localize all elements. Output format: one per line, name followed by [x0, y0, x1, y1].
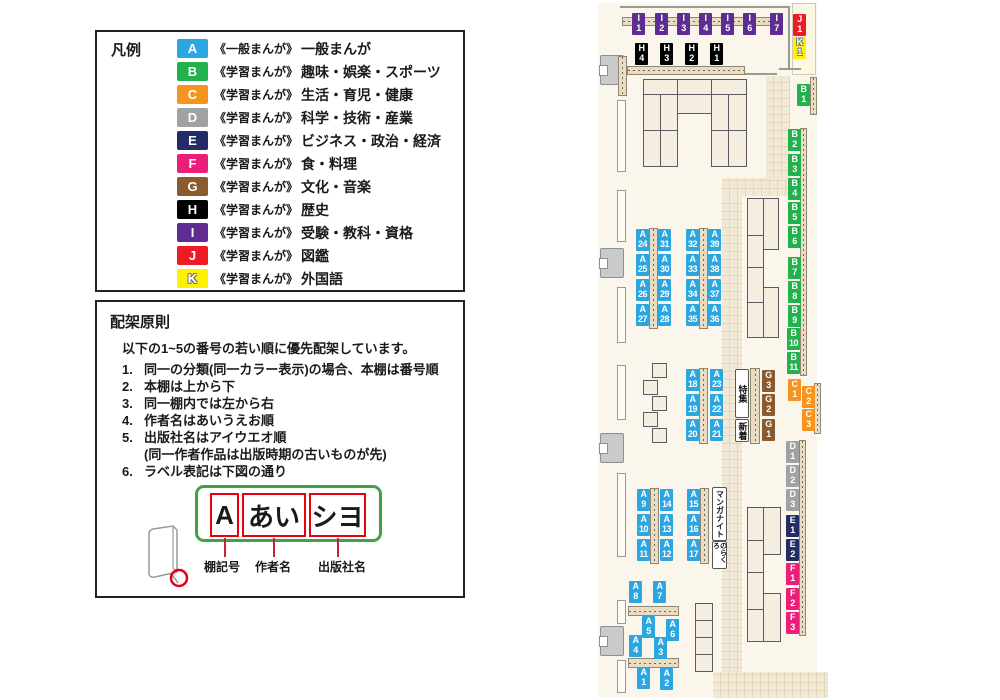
shelf-label-A22: A22 [710, 394, 723, 416]
shelf-block [747, 609, 764, 642]
shelf-label-A37: A37 [708, 279, 721, 301]
shelf-label-B6: B6 [788, 226, 801, 248]
shelf-label-B9: B9 [788, 305, 801, 327]
table-square [652, 428, 667, 443]
shelf-label-A15: A15 [687, 489, 700, 511]
shelf-label-A25: A25 [636, 254, 649, 276]
shelf-label-G1: G1 [762, 419, 775, 441]
shelf-label-I7: I7 [770, 13, 783, 35]
wall-shelf [617, 100, 626, 172]
shelf-block [660, 130, 678, 167]
shelf-label-E2: E2 [786, 539, 799, 561]
shelf-label-A1: A1 [637, 667, 650, 689]
shelf-label-A35: A35 [686, 304, 699, 326]
table-square [652, 396, 667, 411]
sign-tokushu: 特集 [735, 369, 749, 418]
shelf-label-B1: B1 [797, 84, 810, 106]
shelf-label-E1: E1 [786, 515, 799, 537]
wall [620, 6, 790, 8]
shelf-strip [618, 56, 627, 96]
shelf-label-H3: H3 [660, 43, 673, 65]
shelf-label-H1: H1 [710, 43, 723, 65]
shelf-block [747, 572, 764, 610]
shelf-block [763, 593, 781, 642]
shelf-block [677, 94, 712, 114]
shelf-label-A13: A13 [660, 514, 673, 536]
door [600, 626, 624, 656]
shelf-block [643, 130, 661, 167]
shelf-label-G2: G2 [762, 394, 775, 416]
shelf-strip [800, 128, 807, 376]
shelf-label-A24: A24 [636, 229, 649, 251]
shelf-block [643, 79, 678, 95]
shelf-label-H4: H4 [635, 43, 648, 65]
shelf-label-A9: A9 [637, 489, 650, 511]
shelf-label-C1: C1 [788, 379, 801, 401]
shelf-strip [627, 66, 745, 75]
shelf-block [747, 507, 764, 541]
door [600, 433, 624, 463]
walkway [766, 76, 790, 178]
shelf-label-B5: B5 [788, 202, 801, 224]
shelf-label-D2: D2 [786, 465, 799, 487]
shelf-strip [628, 658, 679, 668]
shelf-label-A10: A10 [637, 514, 650, 536]
shelf-label-A5: A5 [642, 616, 655, 638]
table-square [643, 380, 658, 395]
shelf-label-A17: A17 [687, 539, 700, 561]
shelf-label-G3: G3 [762, 370, 775, 392]
shelf-label-C2: C2 [802, 386, 815, 408]
wall-shelf [617, 473, 626, 557]
shelf-label-A21: A21 [710, 419, 723, 441]
shelf-label-A27: A27 [636, 304, 649, 326]
table-square [695, 620, 713, 638]
shelf-label-F2: F2 [786, 588, 799, 610]
shelf-label-J1: J1 [793, 14, 806, 36]
shelf-label-A30: A30 [658, 254, 671, 276]
wall-shelf [617, 190, 626, 242]
shelf-label-B7: B7 [788, 257, 801, 279]
shelf-label-A23: A23 [710, 369, 723, 391]
shelf-label-A11: A11 [637, 539, 650, 561]
door [600, 248, 624, 278]
walkway [722, 178, 790, 196]
shelf-label-H2: H2 [685, 43, 698, 65]
shelf-block [677, 79, 712, 95]
shelf-label-D3: D3 [786, 489, 799, 511]
shelf-strip [799, 440, 806, 636]
wall-shelf [617, 365, 626, 420]
shelf-label-A14: A14 [660, 489, 673, 511]
shelf-label-B3: B3 [788, 154, 801, 176]
shelf-block [747, 540, 764, 573]
shelf-label-A16: A16 [687, 514, 700, 536]
shelf-label-A32: A32 [686, 229, 699, 251]
shelf-label-A36: A36 [708, 304, 721, 326]
walkway [713, 672, 828, 698]
shelf-block [747, 235, 764, 268]
shelf-label-A8: A8 [629, 581, 642, 603]
wall-shelf [617, 287, 626, 343]
shelf-label-B2: B2 [788, 129, 801, 151]
shelf-block [763, 507, 781, 555]
shelf-strip [650, 488, 659, 564]
shelf-block [728, 94, 747, 131]
shelf-block [660, 94, 678, 131]
shelf-label-I2: I2 [655, 13, 668, 35]
shelf-label-A34: A34 [686, 279, 699, 301]
shelf-strip [750, 368, 760, 444]
floor-map: 特集 新着 マンガナイト のらくろ I1I2I3I4I5I6I7J1K1H4H3… [0, 0, 1000, 700]
shelf-strip [628, 606, 679, 616]
shelf-label-B4: B4 [788, 178, 801, 200]
shelf-strip [699, 228, 708, 329]
sign-shinchaku: 新着 [735, 419, 749, 442]
shelf-label-F1: F1 [786, 563, 799, 585]
shelf-block [763, 198, 779, 250]
wall-shelf [617, 660, 626, 693]
shelf-block [763, 287, 779, 338]
wall-shelf [617, 600, 626, 624]
table-square [695, 637, 713, 655]
shelf-label-F3: F3 [786, 612, 799, 634]
shelf-label-A7: A7 [653, 581, 666, 603]
shelf-label-I6: I6 [743, 13, 756, 35]
shelf-label-A33: A33 [686, 254, 699, 276]
shelf-label-A3: A3 [654, 637, 667, 659]
shelf-strip [814, 383, 821, 434]
sign-norakuro: のらくろ [712, 541, 727, 569]
table-square [695, 654, 713, 672]
shelf-label-A20: A20 [686, 419, 699, 441]
shelf-strip [649, 228, 658, 329]
shelf-label-B11: B11 [787, 352, 800, 374]
shelf-block [728, 130, 747, 167]
shelf-label-A12: A12 [660, 539, 673, 561]
shelf-label-A18: A18 [686, 369, 699, 391]
shelf-block [711, 79, 747, 95]
wall [779, 68, 801, 70]
shelf-block [711, 130, 729, 167]
table-square [695, 603, 713, 621]
shelf-label-D1: D1 [786, 441, 799, 463]
shelf-label-A28: A28 [658, 304, 671, 326]
shelf-strip [699, 368, 708, 444]
shelf-label-B10: B10 [787, 328, 800, 350]
table-square [652, 363, 667, 378]
shelf-label-A39: A39 [708, 229, 721, 251]
shelf-label-A38: A38 [708, 254, 721, 276]
shelf-label-I5: I5 [721, 13, 734, 35]
shelf-label-A4: A4 [629, 635, 642, 657]
shelf-label-I1: I1 [632, 13, 645, 35]
shelf-strip [700, 488, 709, 564]
shelf-block [747, 267, 764, 303]
table-square [643, 412, 658, 427]
shelf-label-A6: A6 [666, 619, 679, 641]
shelf-label-A26: A26 [636, 279, 649, 301]
shelf-block [643, 94, 661, 131]
shelf-label-A19: A19 [686, 394, 699, 416]
sign-manga-night: マンガナイト [712, 487, 727, 541]
shelf-block [747, 302, 764, 338]
shelf-label-K1: K1 [793, 37, 806, 59]
shelf-block [711, 94, 729, 131]
shelf-strip [810, 77, 817, 115]
shelf-label-C3: C3 [802, 409, 815, 431]
floor-map-page: 凡例 A《一般まんが》一般まんがB《学習まんが》趣味・娯楽・スポーツC《学習まん… [0, 0, 1000, 700]
shelf-block [747, 198, 764, 236]
shelf-label-I4: I4 [699, 13, 712, 35]
shelf-label-B8: B8 [788, 281, 801, 303]
shelf-label-I3: I3 [677, 13, 690, 35]
shelf-label-A2: A2 [660, 668, 673, 690]
wall [788, 6, 790, 70]
shelf-label-A29: A29 [658, 279, 671, 301]
shelf-label-A31: A31 [658, 229, 671, 251]
